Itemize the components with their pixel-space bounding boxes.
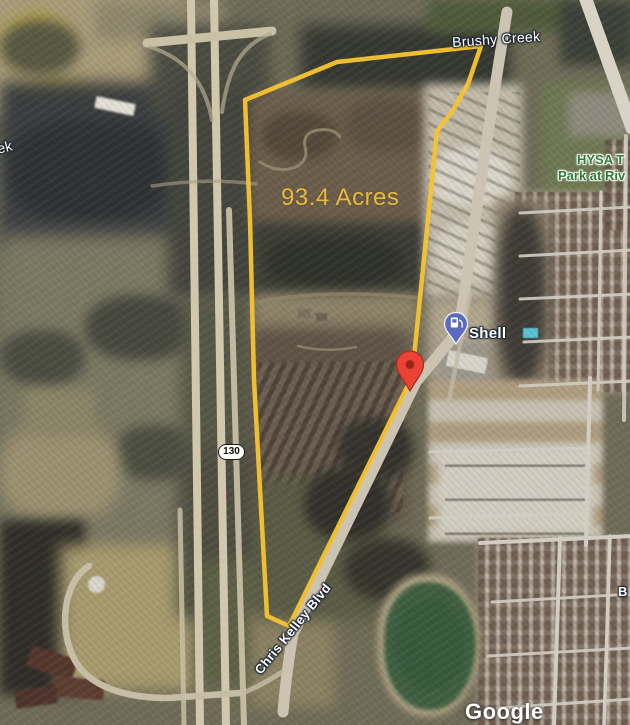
route-shield-130: 130	[218, 444, 245, 460]
parcel-outline-layer	[0, 0, 630, 725]
map-canvas[interactable]: Brushy Creek ek HYSA T Park at Riv 93.4 …	[0, 0, 630, 725]
shell-station-label[interactable]: Shell	[469, 325, 506, 342]
route-shield-number: 130	[223, 447, 240, 457]
parcel-outline	[245, 46, 481, 626]
label-park-line1: HYSA T	[577, 152, 624, 167]
google-watermark: Google	[465, 699, 544, 725]
label-park-line2: Park at Riv	[558, 168, 625, 183]
label-street-partial: B	[618, 584, 628, 599]
parcel-area-label: 93.4 Acres	[281, 184, 399, 212]
